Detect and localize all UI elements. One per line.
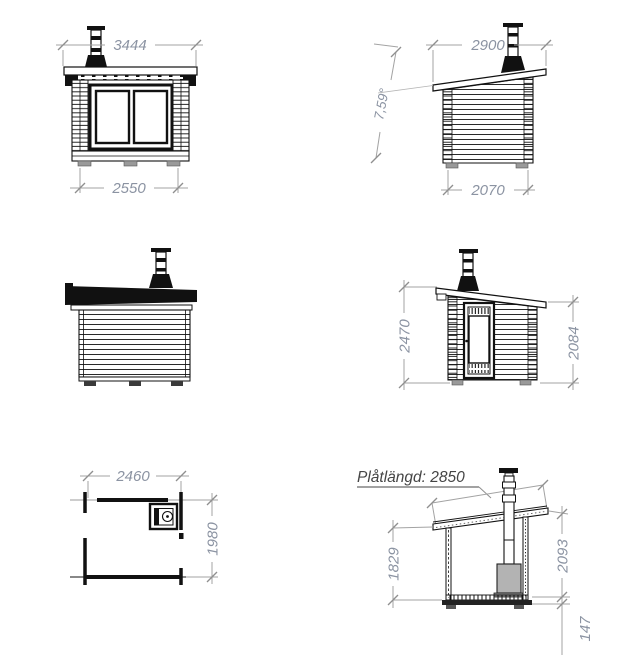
dimension-roof-width: 3444 bbox=[56, 37, 203, 66]
roof bbox=[65, 283, 197, 310]
chimney-flashing bbox=[501, 56, 525, 73]
door-side-elevation-view: 2470 2084 bbox=[397, 249, 583, 390]
foundation-foot bbox=[167, 161, 180, 166]
dim-text-1980: 1980 bbox=[205, 522, 222, 556]
chimney-flashing bbox=[85, 55, 107, 67]
stove-section bbox=[494, 564, 524, 597]
dimension-total-height: 2093 bbox=[532, 506, 572, 655]
label-leader-line bbox=[479, 487, 491, 498]
floor-and-base bbox=[442, 595, 532, 609]
door-vent-top bbox=[469, 308, 489, 315]
door bbox=[464, 303, 494, 378]
foundation-foot bbox=[171, 381, 183, 386]
foundation-foot bbox=[78, 161, 91, 166]
dimension-plan-depth: 1980 bbox=[186, 493, 222, 584]
chimney-flashing bbox=[149, 274, 173, 288]
dimension-interior-height: 1829 bbox=[386, 520, 443, 608]
chimney bbox=[149, 248, 173, 288]
foundation-foot bbox=[129, 381, 141, 386]
dim-text-2084: 2084 bbox=[566, 326, 583, 360]
dim-text-2070: 2070 bbox=[470, 182, 505, 199]
door-handle bbox=[465, 340, 468, 343]
foundation-foot bbox=[446, 605, 456, 609]
dim-text-2460: 2460 bbox=[115, 468, 150, 485]
dim-text-2093: 2093 bbox=[555, 539, 572, 574]
door-glass bbox=[469, 316, 489, 363]
dim-text-2470: 2470 bbox=[397, 319, 414, 354]
foundation-foot bbox=[514, 605, 524, 609]
eave-block bbox=[437, 294, 446, 300]
foundation-foot bbox=[84, 381, 96, 386]
right-side-elevation-view: 2900 7,59° 2070 bbox=[371, 23, 553, 199]
base bbox=[79, 377, 190, 386]
base bbox=[72, 151, 189, 166]
foundation-foot bbox=[516, 163, 528, 168]
plan-walls bbox=[70, 492, 205, 585]
window-pane-right bbox=[134, 91, 167, 143]
front-elevation-view: 3444 2550 bbox=[56, 26, 203, 197]
dimension-height-rear: 2084 bbox=[540, 295, 583, 390]
stove-firebox bbox=[155, 509, 159, 525]
dim-text-angle: 7,59° bbox=[371, 87, 392, 122]
dimension-base-height: 147 bbox=[577, 616, 594, 642]
foundation-foot bbox=[124, 161, 137, 166]
stove-symbol bbox=[150, 504, 177, 529]
dimension-wall-width: 2550 bbox=[70, 168, 188, 197]
rear-wall bbox=[79, 310, 190, 377]
side-wall-logs bbox=[443, 77, 533, 163]
dim-text-1829: 1829 bbox=[386, 547, 403, 581]
chimney bbox=[85, 26, 107, 67]
window-pane-left bbox=[96, 91, 129, 143]
door-jamb bbox=[179, 533, 184, 539]
cross-section-view: Plåtlängd: 2850 bbox=[357, 468, 594, 655]
window bbox=[90, 85, 172, 149]
dimension-roof-angle: 7,59° bbox=[371, 44, 401, 163]
foundation-foot bbox=[520, 380, 531, 385]
dim-text-2900: 2900 bbox=[470, 37, 505, 54]
dim-text-147: 147 bbox=[577, 616, 594, 642]
rear-elevation-view bbox=[65, 248, 197, 386]
foundation-foot bbox=[452, 380, 463, 385]
dimension-wall-depth: 2070 bbox=[441, 170, 535, 199]
plate-length-annotation: Plåtlängd: 2850 bbox=[357, 469, 491, 498]
plate-length-label: Plåtlängd: 2850 bbox=[357, 469, 465, 486]
dimension-plan-width: 2460 bbox=[80, 468, 189, 498]
chimney bbox=[457, 249, 479, 291]
chimney-flashing bbox=[457, 276, 479, 291]
base-beam bbox=[442, 600, 532, 605]
roof-section bbox=[433, 506, 548, 530]
floor-plan-view: 2460 1980 bbox=[70, 468, 222, 585]
dim-text-2550: 2550 bbox=[111, 180, 146, 197]
door-vent-bottom bbox=[469, 364, 489, 373]
technical-drawing-canvas: 3444 2550 bbox=[0, 0, 641, 659]
drawing-sheet: 3444 2550 bbox=[0, 0, 641, 659]
dim-text-3444: 3444 bbox=[113, 37, 146, 54]
foundation-foot bbox=[446, 163, 458, 168]
